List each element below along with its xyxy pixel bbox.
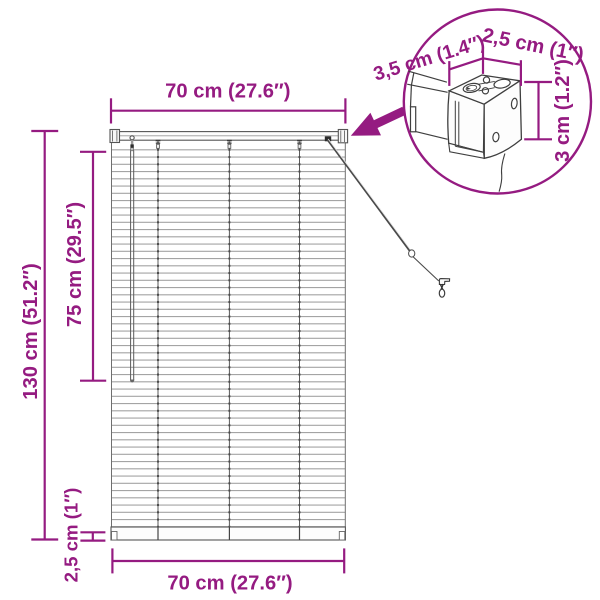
svg-text:130 cm (51.2″): 130 cm (51.2″) — [20, 263, 42, 399]
svg-text:3 cm (1.2″): 3 cm (1.2″) — [552, 59, 574, 162]
svg-text:70 cm (27.6″): 70 cm (27.6″) — [167, 573, 292, 595]
svg-text:70 cm (27.6″): 70 cm (27.6″) — [165, 81, 290, 103]
svg-text:2,5 cm (1″): 2,5 cm (1″) — [61, 488, 82, 583]
svg-text:75 cm (29.5″): 75 cm (29.5″) — [64, 202, 86, 327]
